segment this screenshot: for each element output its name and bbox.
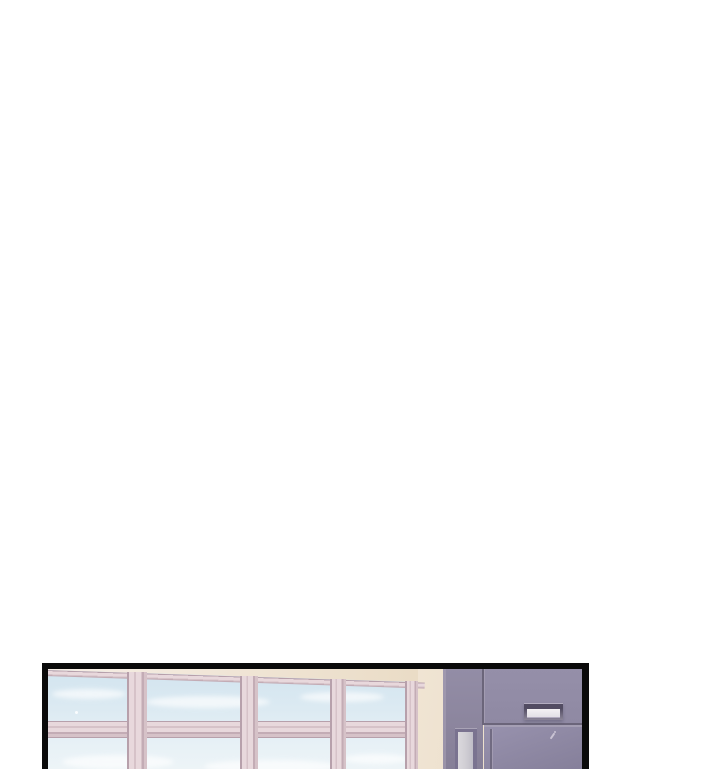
door-window-frame-highlight bbox=[455, 728, 477, 729]
panel-scene bbox=[48, 669, 582, 769]
glass-sparkle bbox=[75, 711, 78, 714]
wall-vertical-seam-highlight bbox=[484, 669, 485, 723]
window-mullion bbox=[127, 672, 147, 769]
purple-wall bbox=[443, 669, 582, 769]
window-right-frame bbox=[405, 681, 418, 769]
door-face bbox=[484, 725, 582, 769]
door-stile-highlight bbox=[492, 729, 493, 769]
door-top-seam-highlight bbox=[484, 725, 582, 727]
cloud bbox=[344, 754, 405, 764]
page-background bbox=[0, 0, 720, 769]
window-wall bbox=[48, 669, 418, 769]
window-mullion bbox=[330, 679, 346, 769]
door-window bbox=[455, 728, 477, 769]
scratch-mark-dot bbox=[554, 731, 556, 733]
door-nameplate bbox=[524, 703, 563, 720]
cloud bbox=[62, 755, 174, 769]
wall-corner-highlight bbox=[443, 669, 446, 769]
window-mullion bbox=[240, 676, 258, 769]
door-nameplate-blank-plate bbox=[527, 709, 560, 718]
cloud bbox=[204, 760, 338, 769]
comic-panel bbox=[42, 663, 589, 769]
door-window-glass bbox=[458, 732, 473, 769]
cloud bbox=[52, 689, 126, 699]
window-transom-rail bbox=[48, 721, 418, 738]
